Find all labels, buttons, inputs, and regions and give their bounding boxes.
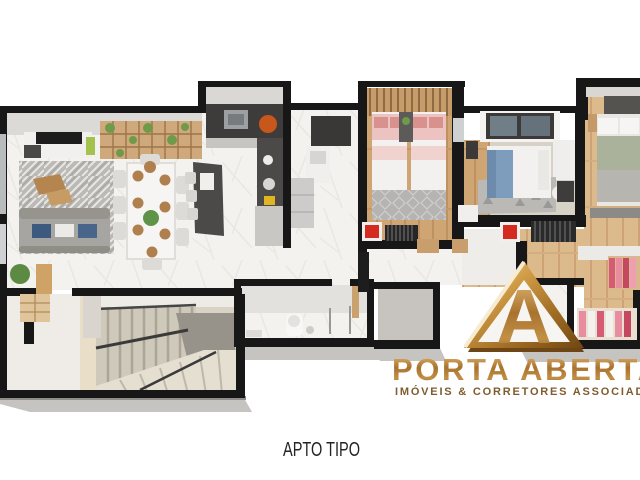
svg-text:APTO TIPO: APTO TIPO	[283, 438, 360, 461]
svg-text:IMÓVEIS & CORRETORES ASSOCIADO: IMÓVEIS & CORRETORES ASSOCIADOS	[395, 385, 640, 398]
svg-text:PORTA ABERTA: PORTA ABERTA	[392, 352, 640, 387]
